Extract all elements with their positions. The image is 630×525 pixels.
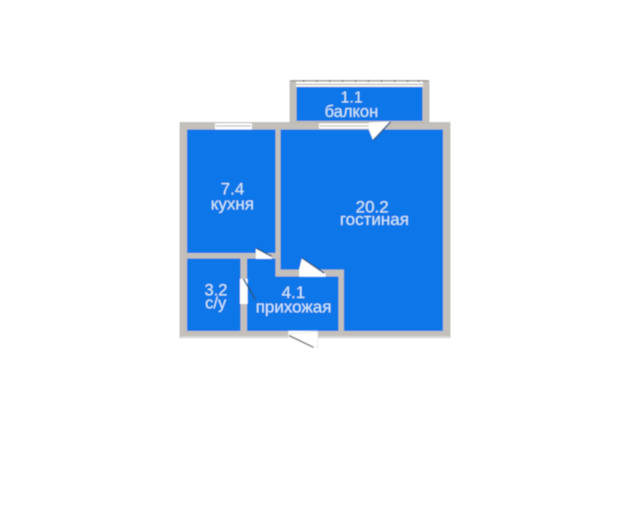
svg-text:прихожая: прихожая bbox=[256, 297, 332, 316]
svg-text:кухня: кухня bbox=[211, 194, 254, 213]
svg-text:гостиная: гостиная bbox=[340, 210, 409, 229]
svg-text:балкон: балкон bbox=[325, 103, 379, 121]
svg-text:с/у: с/у bbox=[205, 294, 227, 312]
